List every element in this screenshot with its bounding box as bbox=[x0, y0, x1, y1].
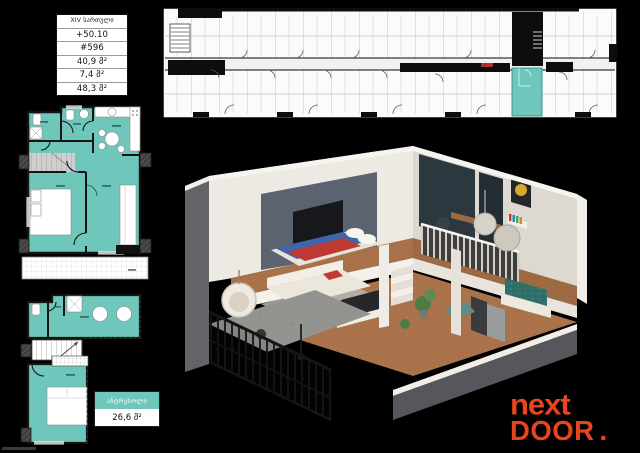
mezzanine-label-box: ანტრესოლი 26,6 მ² bbox=[94, 391, 160, 427]
logo-dot: . bbox=[600, 420, 608, 443]
nextdoor-logo: next DOOR. bbox=[510, 392, 632, 450]
stair-core-left bbox=[178, 8, 222, 18]
unit-number-label: #596 bbox=[57, 42, 127, 56]
balcony-plan bbox=[22, 257, 148, 279]
mezzanine-floor-plan bbox=[16, 286, 152, 452]
apartment-3d-render bbox=[175, 128, 587, 428]
mezzanine-area: 26,6 მ² bbox=[95, 409, 159, 426]
left-outer-wall bbox=[185, 176, 209, 372]
mezzanine-title: ანტრესოლი bbox=[95, 392, 159, 409]
total-area-label: 48,3 მ² bbox=[57, 83, 127, 96]
stairs bbox=[391, 258, 413, 306]
highlighted-unit bbox=[512, 68, 542, 116]
main-floor-plan bbox=[16, 101, 152, 283]
floor-label: XIV სართული bbox=[57, 15, 127, 29]
elevation-label: +50.10 bbox=[57, 29, 127, 43]
unit-info-table: XIV სართული +50.10 #596 40,9 მ² 7,4 მ² 4… bbox=[56, 14, 128, 96]
unit-number-marker bbox=[481, 63, 493, 67]
key-plan-strip bbox=[163, 8, 617, 118]
logo-word-next: next bbox=[510, 393, 632, 417]
plan-sheet: XIV სართული +50.10 #596 40,9 მ² 7,4 მ² 4… bbox=[0, 0, 640, 453]
fridge bbox=[487, 304, 505, 342]
pendant-lamp bbox=[494, 225, 520, 251]
stair-core-center bbox=[512, 12, 543, 66]
balcony-area-label: 7,4 მ² bbox=[57, 69, 127, 83]
pendant-lamp bbox=[474, 213, 496, 235]
watermark bbox=[2, 447, 36, 450]
living-area-label: 40,9 მ² bbox=[57, 56, 127, 70]
